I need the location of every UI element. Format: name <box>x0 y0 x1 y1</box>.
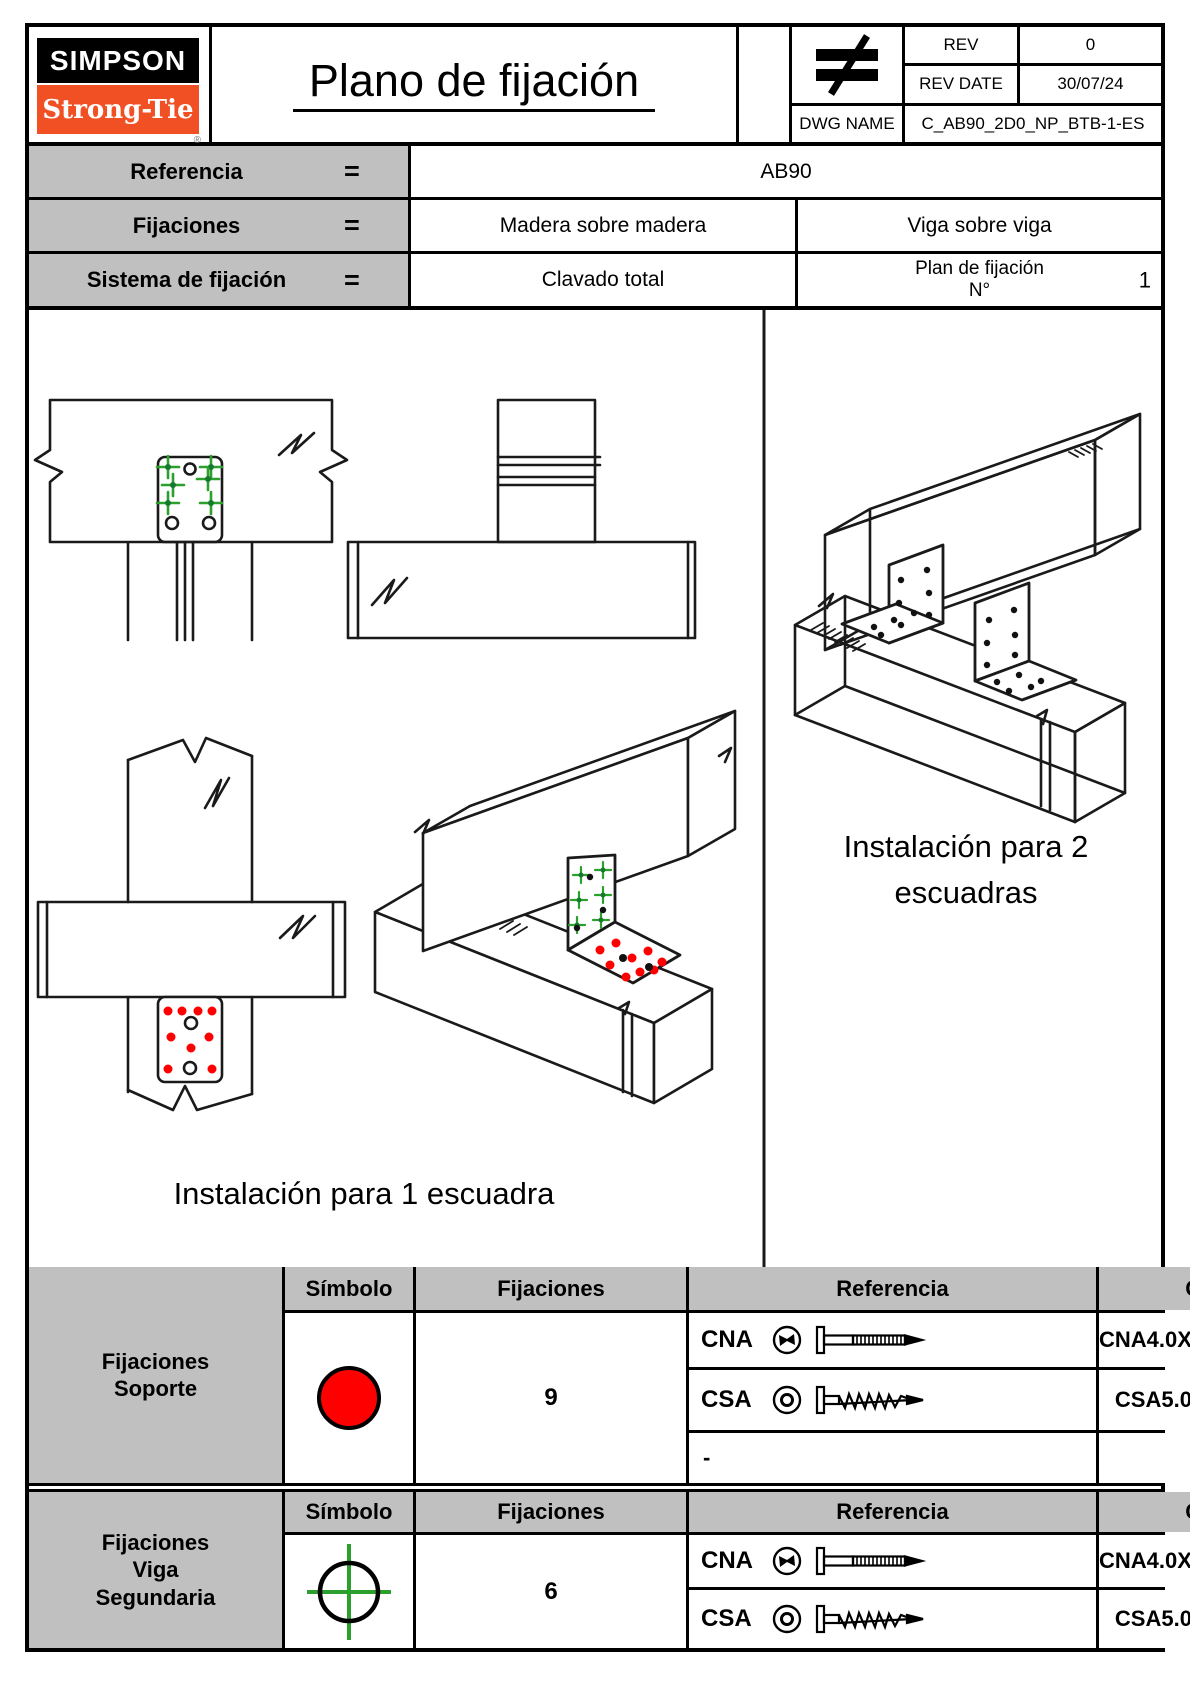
title-block-region: REV 0 REV DATE 30/07/24 DWG NAME C_AB90_… <box>736 27 1161 142</box>
sistema-label: Sistema de fijación <box>29 267 344 293</box>
support-fastener-table: Fijaciones Soporte Símbolo Fijaciones Re… <box>29 1267 1161 1486</box>
secondary-row-cna: CNA <box>689 1535 1096 1587</box>
nail-head-icon <box>771 1545 803 1577</box>
technical-drawing <box>29 310 1161 1267</box>
reference-header: Referencia <box>689 1267 1096 1310</box>
support-group-label: Fijaciones Soporte <box>29 1267 282 1483</box>
logo-cell: SIMPSON Strong-Tie ® <box>29 27 212 142</box>
support-symbol-cell <box>285 1313 413 1483</box>
csa-code: CSA <box>701 1386 759 1414</box>
ring-nail-icon <box>815 1323 933 1357</box>
info-table: Referencia = AB90 Fijaciones = Madera so… <box>29 146 1161 310</box>
referencia-label: Referencia <box>29 159 344 185</box>
support-row-cna: CNA <box>689 1313 1096 1367</box>
reference-header: Referencia <box>689 1492 1096 1532</box>
sheet-header: SIMPSON Strong-Tie ® Plano de fijación <box>29 27 1161 146</box>
secondary-fastener-table: Fijaciones Viga Segundaria Símbolo Fijac… <box>29 1489 1161 1648</box>
registered-mark: ® <box>194 135 201 146</box>
secondary-group-label: Fijaciones Viga Segundaria <box>29 1492 282 1648</box>
fixings-header: Fijaciones <box>416 1267 686 1310</box>
plan-no-label: N° <box>969 280 990 302</box>
red-circle-icon <box>317 1366 381 1430</box>
screw-head-icon <box>771 1603 803 1635</box>
fixing-plan-sheet: SIMPSON Strong-Tie ® Plano de fijación <box>0 0 1190 1682</box>
rev-label: REV <box>905 27 1017 63</box>
secondary-csa-reference: CSA5.0X35/40/50 <box>1099 1590 1190 1648</box>
support-csa-reference: CSA5.0X35/40/50 <box>1099 1370 1190 1430</box>
sheet-frame: SIMPSON Strong-Tie ® Plano de fijación <box>25 23 1165 1652</box>
caption-one-bracket: Instalación para 1 escuadra <box>129 1176 599 1212</box>
green-crosshair-icon <box>299 1540 399 1644</box>
referencia-value: AB90 <box>411 146 1161 197</box>
fijaciones-label-cell: Fijaciones = <box>29 200 408 251</box>
rev-date-value: 30/07/24 <box>1020 66 1161 102</box>
dwg-name-label: DWG NAME <box>792 106 902 142</box>
caption-two-brackets: Instalación para 2 escuadras <box>781 824 1151 916</box>
title-cell: Plano de fijación <box>212 27 736 142</box>
fijaciones-value-left: Madera sobre madera <box>411 200 795 251</box>
plan-number-value: 1 <box>1139 267 1151 292</box>
page-title: Plano de fijación <box>293 58 655 112</box>
secondary-qty: 6 <box>416 1535 686 1648</box>
cna-code: CNA <box>701 1547 759 1575</box>
not-equal-projection-icon <box>804 34 890 96</box>
support-row-dash: - <box>689 1433 1096 1483</box>
support-cna-reference: CNA4.0X35/40/50/60 <box>1099 1313 1190 1367</box>
projection-symbol-cell <box>792 27 902 103</box>
screw-head-icon <box>771 1384 803 1416</box>
dwg-name-value: C_AB90_2D0_NP_BTB-1-ES <box>905 106 1161 142</box>
qty-header: Ctd <box>1099 1492 1190 1532</box>
caption-two-line1: Instalación para 2 <box>781 824 1151 870</box>
secondary-cna-reference: CNA4.0X35/40/50/60 <box>1099 1535 1190 1587</box>
qty-header: Ctd <box>1099 1267 1190 1310</box>
equals-sign: = <box>344 265 408 296</box>
csa-code: CSA <box>701 1605 759 1633</box>
isometric-one-bracket <box>375 711 735 1103</box>
equals-sign: = <box>344 156 408 187</box>
plan-view <box>35 400 347 640</box>
title-block: REV 0 REV DATE 30/07/24 DWG NAME C_AB90_… <box>789 27 1161 142</box>
plan-label: Plan de fijación <box>915 258 1044 280</box>
wood-screw-icon <box>815 1602 933 1636</box>
nail-head-icon <box>771 1324 803 1356</box>
support-row-csa: CSA <box>689 1370 1096 1430</box>
cna-code: CNA <box>701 1326 759 1354</box>
wood-screw-icon <box>815 1383 933 1417</box>
fijaciones-value-right: Viga sobre viga <box>798 200 1161 251</box>
symbol-header: Símbolo <box>285 1492 413 1532</box>
referencia-label-cell: Referencia = <box>29 146 408 197</box>
simpson-strongtie-logo: SIMPSON Strong-Tie ® <box>37 38 199 134</box>
isometric-two-brackets <box>795 414 1140 822</box>
symbol-header: Símbolo <box>285 1267 413 1310</box>
logo-simpson-text: SIMPSON <box>37 38 199 83</box>
secondary-row-csa: CSA <box>689 1590 1096 1648</box>
drawing-area: Instalación para 1 escuadra Instalación … <box>29 310 1161 1267</box>
elevation-view <box>348 400 695 638</box>
secondary-symbol-cell <box>285 1535 413 1648</box>
support-qty: 9 <box>416 1313 686 1483</box>
rev-value: 0 <box>1020 27 1161 63</box>
ring-nail-icon <box>815 1544 933 1578</box>
rev-date-label: REV DATE <box>905 66 1017 102</box>
fijaciones-label: Fijaciones <box>29 213 344 239</box>
front-view <box>38 738 345 1110</box>
caption-two-line2: escuadras <box>781 870 1151 916</box>
fixings-header: Fijaciones <box>416 1492 686 1532</box>
sistema-value-left: Clavado total <box>411 254 795 306</box>
plan-number-cell: Plan de fijación N° 1 <box>798 254 1161 306</box>
equals-sign: = <box>344 210 408 241</box>
support-dash-reference: - <box>1099 1433 1190 1483</box>
logo-strongtie-text: Strong-Tie <box>37 85 199 134</box>
sistema-label-cell: Sistema de fijación = <box>29 254 408 306</box>
